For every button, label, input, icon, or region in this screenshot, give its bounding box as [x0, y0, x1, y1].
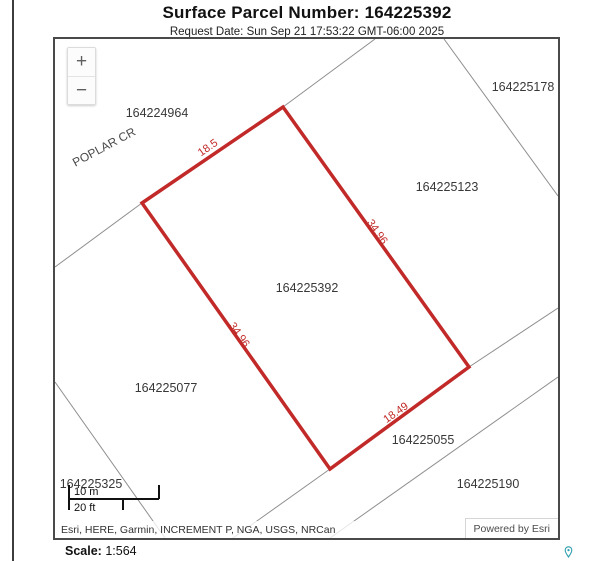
parcel-boundary-line	[55, 382, 165, 538]
parcel-boundary-line	[444, 39, 558, 196]
parcel-label: 164225178	[492, 80, 555, 94]
parcel-label: 164225055	[392, 433, 455, 447]
location-pin-icon	[564, 546, 573, 558]
parcel-map-canvas: POPLAR CR 164224964 164225178 164225123 …	[55, 39, 558, 538]
scale-label: Scale:	[65, 544, 102, 558]
map-scale-readout: Scale: 1:564	[65, 544, 137, 558]
scale-value: 1:564	[105, 544, 136, 558]
zoom-out-button[interactable]: −	[68, 76, 95, 104]
parcel-boundary-line	[330, 377, 558, 538]
dimension-label: 18.5	[196, 137, 220, 159]
zoom-in-button[interactable]: +	[68, 48, 95, 76]
parcel-label: 164225123	[416, 180, 479, 194]
parcel-label-highlighted: 164225392	[276, 281, 339, 295]
zoom-control: + −	[67, 47, 96, 105]
page-left-border	[12, 0, 14, 561]
parcel-label: 164225077	[135, 381, 198, 395]
dimension-label: 34.96	[364, 217, 390, 246]
parcel-label: 164224964	[126, 106, 189, 120]
scale-bar-imperial-label: 20 ft	[74, 502, 95, 514]
parcel-label: 164225190	[457, 477, 520, 491]
scale-bar-metric-label: 10 m	[74, 486, 98, 498]
street-label: POPLAR CR	[70, 124, 138, 169]
parcel-boundary-line	[469, 308, 558, 367]
parcel-boundary-line	[55, 203, 142, 267]
parcel-map[interactable]: POPLAR CR 164224964 164225178 164225123 …	[53, 37, 560, 540]
parcel-boundary-line	[283, 39, 375, 107]
page-title: Surface Parcel Number: 164225392	[14, 3, 600, 23]
powered-by-esri: Powered by Esri	[465, 518, 558, 538]
map-attribution-bar: Esri, HERE, Garmin, INCREMENT P, NGA, US…	[55, 521, 558, 538]
dimension-label: 34.96	[226, 320, 252, 349]
attribution-sources: Esri, HERE, Garmin, INCREMENT P, NGA, US…	[55, 524, 341, 538]
report-header: Surface Parcel Number: 164225392 Request…	[14, 3, 600, 38]
